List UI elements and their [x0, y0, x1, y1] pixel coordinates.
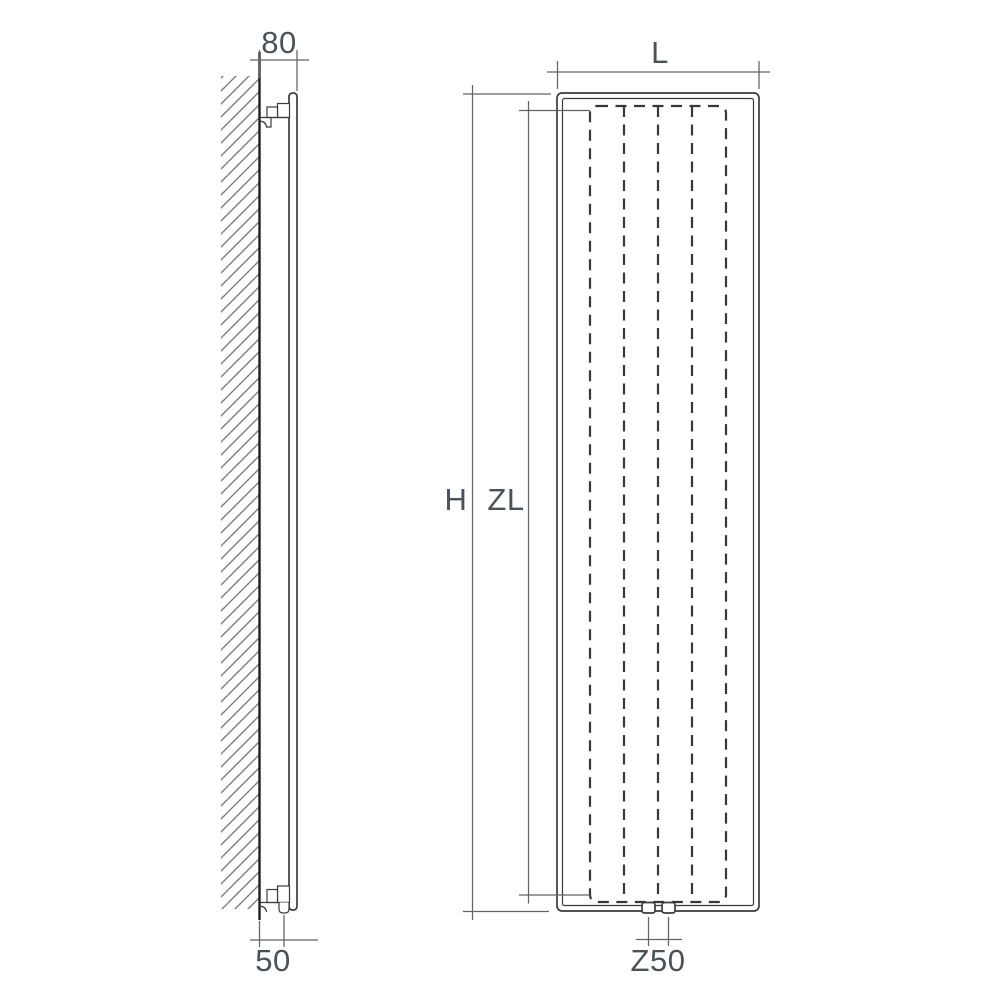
dimension-width-L: L — [547, 35, 770, 89]
wall-hatching — [221, 76, 260, 909]
connection-stub — [279, 903, 289, 914]
offset-dimension-label: 50 — [255, 943, 290, 978]
front-view: L H ZL Z50 — [445, 35, 770, 978]
port-spacing-dimension-label: Z50 — [631, 943, 686, 978]
bracket-hook — [260, 118, 272, 127]
dimension-ports-Z50: Z50 — [631, 917, 686, 978]
bracket-arm — [278, 886, 290, 903]
radiator-dimension-diagram: 80 50 L — [0, 0, 1000, 1000]
mounting-bracket-top — [260, 104, 290, 128]
dimension-offset-50: 50 — [250, 915, 318, 978]
width-dimension-label: L — [651, 35, 669, 70]
dimension-zone-ZL: ZL — [487, 101, 590, 904]
radiator-panel-side-profile — [289, 93, 297, 910]
connection-port-left — [642, 903, 655, 914]
depth-dimension-label: 80 — [261, 25, 296, 60]
side-view: 80 50 — [221, 25, 318, 978]
connection-port-right — [662, 903, 675, 914]
heating-zone-dashed — [590, 106, 726, 902]
zone-dimension-label: ZL — [487, 482, 524, 517]
bracket-arm — [278, 104, 290, 118]
height-dimension-label: H — [445, 482, 468, 517]
mounting-bracket-bottom — [260, 886, 290, 913]
bracket-step — [267, 107, 278, 118]
technical-drawing-svg: 80 50 L — [0, 0, 1000, 1000]
bracket-step — [267, 890, 278, 903]
